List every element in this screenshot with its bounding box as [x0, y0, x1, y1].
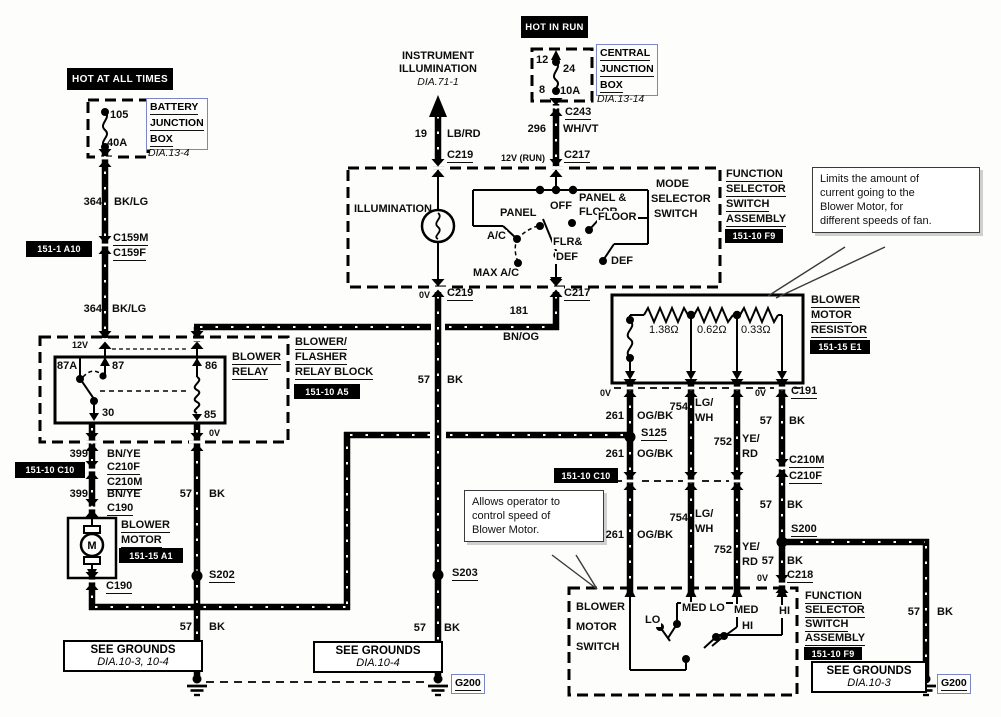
- resistor-note: Limits the amount of current going to th…: [812, 167, 980, 233]
- fssa-bottom-line3: SWITCH: [805, 618, 848, 632]
- blower-relay-internals: [77, 343, 202, 421]
- cjb-line2: JUNCTION: [600, 62, 654, 77]
- position-floor: FLOOR: [597, 211, 638, 224]
- wire-57-number-relay: 57: [170, 488, 192, 501]
- cjb-line1: CENTRAL: [600, 46, 650, 61]
- resistor-note-line3: Blower Motor, for: [820, 200, 972, 214]
- blower-motor-title2: MOTOR: [121, 534, 162, 548]
- see-grounds-mid-title: SEE GROUNDS: [319, 645, 437, 657]
- battery-junction-box-link[interactable]: BATTERY JUNCTION BOX: [146, 98, 208, 150]
- resistor-internals: [625, 308, 787, 380]
- position-off: OFF: [549, 200, 573, 213]
- ref-151-1-a10: 151-1 A10: [26, 241, 92, 257]
- wire-57-number-r2: 57: [750, 499, 772, 512]
- wire-752-color-a1: YE/: [742, 433, 760, 446]
- switch-position-lo: LO: [644, 614, 661, 627]
- switch-note-line3: Blower Motor.: [472, 523, 596, 537]
- voltage-0v-r1: 0V: [600, 387, 611, 400]
- instrument-illumination-heading: INSTRUMENT ILLUMINATION DIA.71-1: [378, 50, 498, 89]
- wire-57-color-r3: BK: [787, 555, 803, 568]
- blower-switch-title2: MOTOR: [576, 621, 617, 634]
- instr-dia-ref: DIA.71-1: [417, 76, 458, 88]
- ground-g200-mid-link[interactable]: G200: [451, 674, 485, 694]
- fssa-bottom-line1: FUNCTION: [805, 590, 862, 604]
- wire-57-number-g200: 57: [898, 606, 920, 619]
- relay-pin-86: 86: [205, 360, 217, 373]
- fuse-105-id: 105: [110, 109, 128, 122]
- see-grounds-right-box: SEE GROUNDS DIA.10-3: [811, 661, 927, 693]
- motor-symbol: M: [87, 540, 96, 552]
- g200-right-label: G200: [941, 676, 967, 691]
- blower-switch-title3: SWITCH: [576, 641, 619, 654]
- fssa-top-line4: ASSEMBLY: [726, 213, 786, 227]
- connector-c243: C243: [565, 106, 591, 120]
- ref-151-10-f9-top: 151-10 F9: [725, 229, 783, 243]
- resistor-title3: RESISTOR: [811, 324, 867, 338]
- cjb-dia-ref: DIA.13-14: [597, 93, 644, 106]
- wire-399-number: 399: [58, 448, 88, 461]
- relay-block-title1: BLOWER/: [295, 336, 347, 350]
- wire-57-number-relay2: 57: [170, 621, 192, 634]
- wire-57-color-r2: BK: [787, 499, 803, 512]
- fuse-24-id: 24: [563, 63, 575, 76]
- connector-c218: C218: [787, 569, 813, 583]
- connector-c190-bottom: C190: [106, 580, 132, 594]
- mode-selector-line1: MODE: [656, 178, 689, 191]
- resistor-value-3: 0.33Ω: [741, 324, 771, 337]
- position-panel: PANEL: [499, 207, 537, 220]
- see-grounds-right-dia: DIA.10-3: [817, 677, 921, 689]
- wire-261-number-c: 261: [596, 529, 624, 542]
- blower-motor-resistor-outline: [612, 295, 803, 383]
- instr-line1: INSTRUMENT: [402, 50, 474, 62]
- see-grounds-mid-dia: DIA.10-4: [319, 657, 437, 669]
- ref-151-15-e1: 151-15 E1: [810, 340, 870, 354]
- bjb-line3: BOX: [150, 132, 173, 147]
- wire-399-color-2: BN/YE: [107, 488, 141, 501]
- wire-754-color-b2: WH: [695, 523, 713, 536]
- ref-151-10-c10-mid: 151-10 C10: [554, 468, 618, 483]
- wire-261-color-b: OG/BK: [637, 448, 673, 461]
- connector-c159f: C159F: [113, 247, 146, 261]
- bjb-dia-ref: DIA.13-4: [148, 147, 189, 160]
- bjb-line2: JUNCTION: [150, 116, 204, 131]
- switch-position-med-hi-1: MED: [733, 604, 759, 617]
- wire-57-number-r3: 57: [752, 555, 774, 568]
- resistor-value-1: 1.38Ω: [649, 324, 679, 337]
- connector-c219-top: C219: [447, 149, 473, 163]
- see-grounds-left-box: SEE GROUNDS DIA.10-3, 10-4: [63, 640, 203, 672]
- wire-57-number-mid2: 57: [404, 622, 426, 635]
- g200-mid-label: G200: [455, 676, 481, 691]
- position-flr-def-2: DEF: [555, 251, 579, 264]
- ref-151-10-c10-left: 151-10 C10: [15, 462, 85, 478]
- blower-switch-title1: BLOWER: [576, 601, 625, 614]
- wire-57-number-r1: 57: [750, 415, 772, 428]
- wire-364-number: 364: [72, 196, 102, 209]
- wiring-diagram: M HOT AT ALL TIMES HOT IN RUN BATTERY JU…: [0, 0, 1001, 717]
- illumination-label: ILLUMINATION: [354, 203, 432, 216]
- fssa-top-line1: FUNCTION: [726, 168, 783, 182]
- position-max-ac: MAX A/C: [472, 267, 520, 280]
- up-arrow-icon: [429, 95, 447, 117]
- wire-752-number-b: 752: [704, 544, 732, 557]
- connector-c159m: C159M: [113, 232, 148, 246]
- ref-151-10-a5: 151-10 A5: [294, 384, 360, 399]
- resistor-title1: BLOWER: [811, 294, 860, 308]
- wire-364-number-2: 364: [72, 303, 102, 316]
- wire-364-color: BK/LG: [114, 196, 148, 209]
- resistor-note-line2: current going to the: [820, 186, 972, 200]
- wire-296-number: 296: [522, 123, 546, 136]
- connector-c210m-right: C210M: [789, 454, 824, 468]
- position-flr-def-1: FLR&: [552, 236, 583, 249]
- hot-in-run-banner: HOT IN RUN: [521, 16, 588, 38]
- illumination-lamp-symbol: [422, 170, 454, 287]
- wire-57-color-relay2: BK: [209, 621, 225, 634]
- position-def: DEF: [610, 255, 634, 268]
- see-grounds-right-title: SEE GROUNDS: [817, 665, 921, 677]
- wire-364-color-2: BK/LG: [112, 303, 146, 316]
- fuse-105-rating: 40A: [107, 137, 127, 150]
- splice-s202: S202: [209, 569, 235, 583]
- central-junction-box-link[interactable]: CENTRAL JUNCTION BOX: [596, 44, 658, 96]
- connector-c191: C191: [791, 385, 817, 399]
- splice-s203: S203: [452, 567, 478, 581]
- fuse-24-rating: 10A: [560, 85, 580, 98]
- wire-261-color-c: OG/BK: [637, 529, 673, 542]
- wire-754-color-a2: WH: [695, 412, 713, 425]
- relay-block-title3: RELAY BLOCK: [295, 366, 373, 380]
- switch-position-med-lo: MED LO: [681, 602, 726, 615]
- instr-line2: ILLUMINATION: [399, 63, 477, 75]
- switch-note: Allows operator to control speed of Blow…: [464, 490, 604, 542]
- resistor-title2: MOTOR: [811, 309, 852, 323]
- fssa-top-line3: SWITCH: [726, 198, 769, 212]
- switch-note-line2: control speed of: [472, 509, 596, 523]
- resistor-note-line1: Limits the amount of: [820, 172, 972, 186]
- see-grounds-left-dia: DIA.10-3, 10-4: [69, 656, 197, 668]
- wire-261-number-b: 261: [596, 448, 624, 461]
- switch-position-hi: HI: [778, 605, 791, 618]
- wire-296-color: WH/VT: [563, 123, 598, 136]
- relay-pin-87a: 87A: [57, 360, 77, 373]
- mode-selector-line2: SELECTOR: [651, 193, 711, 206]
- wire-261-number-a: 261: [596, 410, 624, 423]
- see-grounds-mid-box: SEE GROUNDS DIA.10-4: [313, 641, 443, 673]
- fuse-24-pin-top: 12: [536, 54, 548, 67]
- connector-c210f-right: C210F: [789, 470, 822, 484]
- relay-pin-85: 85: [204, 409, 216, 422]
- wire-57-color-mid: BK: [447, 374, 463, 387]
- fssa-top-line2: SELECTOR: [726, 183, 786, 197]
- relay-block-title2: FLASHER: [295, 351, 347, 365]
- wire-57-color-g200: BK: [937, 606, 953, 619]
- cjb-line3: BOX: [600, 78, 623, 93]
- splice-s125: S125: [641, 427, 667, 441]
- voltage-0v-relay: 0V: [209, 427, 220, 440]
- wire-752-number-a: 752: [704, 436, 732, 449]
- hot-at-all-times-banner: HOT AT ALL TIMES: [67, 68, 173, 90]
- see-grounds-left-title: SEE GROUNDS: [69, 644, 197, 656]
- connector-c219-bottom: C219: [447, 287, 473, 301]
- connector-c217-top: C217: [564, 149, 590, 163]
- wire-399-color: BN/YE: [107, 448, 141, 461]
- splice-s200: S200: [791, 523, 817, 537]
- wire-752-color-b1: YE/: [742, 541, 760, 554]
- wire-181-color: BN/OG: [503, 331, 539, 344]
- wire-57-color-r1: BK: [789, 415, 805, 428]
- wire-181-number: 181: [500, 305, 528, 318]
- position-ac: A/C: [486, 230, 507, 243]
- mode-selector-line3: SWITCH: [654, 208, 697, 221]
- voltage-0v-r4: 0V: [755, 387, 766, 400]
- connector-c217-bottom: C217: [564, 287, 590, 301]
- connector-c210f-left: C210F: [107, 461, 140, 475]
- wire-57-color-mid2: BK: [444, 622, 460, 635]
- voltage-12v-run: 12V (RUN): [501, 152, 545, 165]
- wire-57-number-mid: 57: [408, 374, 430, 387]
- switch-position-med-hi-2: HI: [741, 620, 754, 633]
- fssa-bottom-line4: ASSEMBLY: [805, 632, 865, 646]
- connector-c190-top: C190: [107, 502, 133, 516]
- blower-motor-title1: BLOWER: [121, 519, 170, 533]
- resistor-note-line4: different speeds of fan.: [820, 214, 972, 228]
- switch-note-line1: Allows operator to: [472, 495, 596, 509]
- blower-relay-title1: BLOWER: [232, 351, 281, 365]
- position-panel-floor-1: PANEL &: [578, 192, 627, 205]
- relay-pin-87: 87: [112, 360, 124, 373]
- fuse-24-pin-bottom: 8: [539, 84, 545, 97]
- wire-754-number-a: 754: [660, 401, 688, 414]
- ref-151-10-f9-bottom: 151-10 F9: [804, 647, 862, 660]
- voltage-0v-c219: 0V: [419, 289, 430, 302]
- relay-pin-30: 30: [102, 407, 114, 420]
- fssa-bottom-line2: SELECTOR: [805, 604, 865, 618]
- wire-754-number-b: 754: [660, 512, 688, 525]
- resistor-value-2: 0.62Ω: [697, 324, 727, 337]
- bjb-line1: BATTERY: [150, 100, 198, 115]
- voltage-0v-c218: 0V: [757, 572, 768, 585]
- blower-relay-title2: RELAY: [232, 366, 268, 380]
- wire-399-number-2: 399: [58, 488, 88, 501]
- ref-151-15-a1: 151-15 A1: [119, 548, 183, 563]
- wire-57-color-relay: BK: [209, 488, 225, 501]
- wire-754-color-b1: LG/: [695, 508, 713, 521]
- wire-19-number: 19: [403, 128, 427, 141]
- wire-19-color: LB/RD: [447, 128, 481, 141]
- wire-754-color-a1: LG/: [695, 397, 713, 410]
- voltage-12v: 12V: [72, 339, 88, 352]
- wire-752-color-a2: RD: [742, 448, 758, 461]
- ground-g200-right-link[interactable]: G200: [937, 674, 971, 694]
